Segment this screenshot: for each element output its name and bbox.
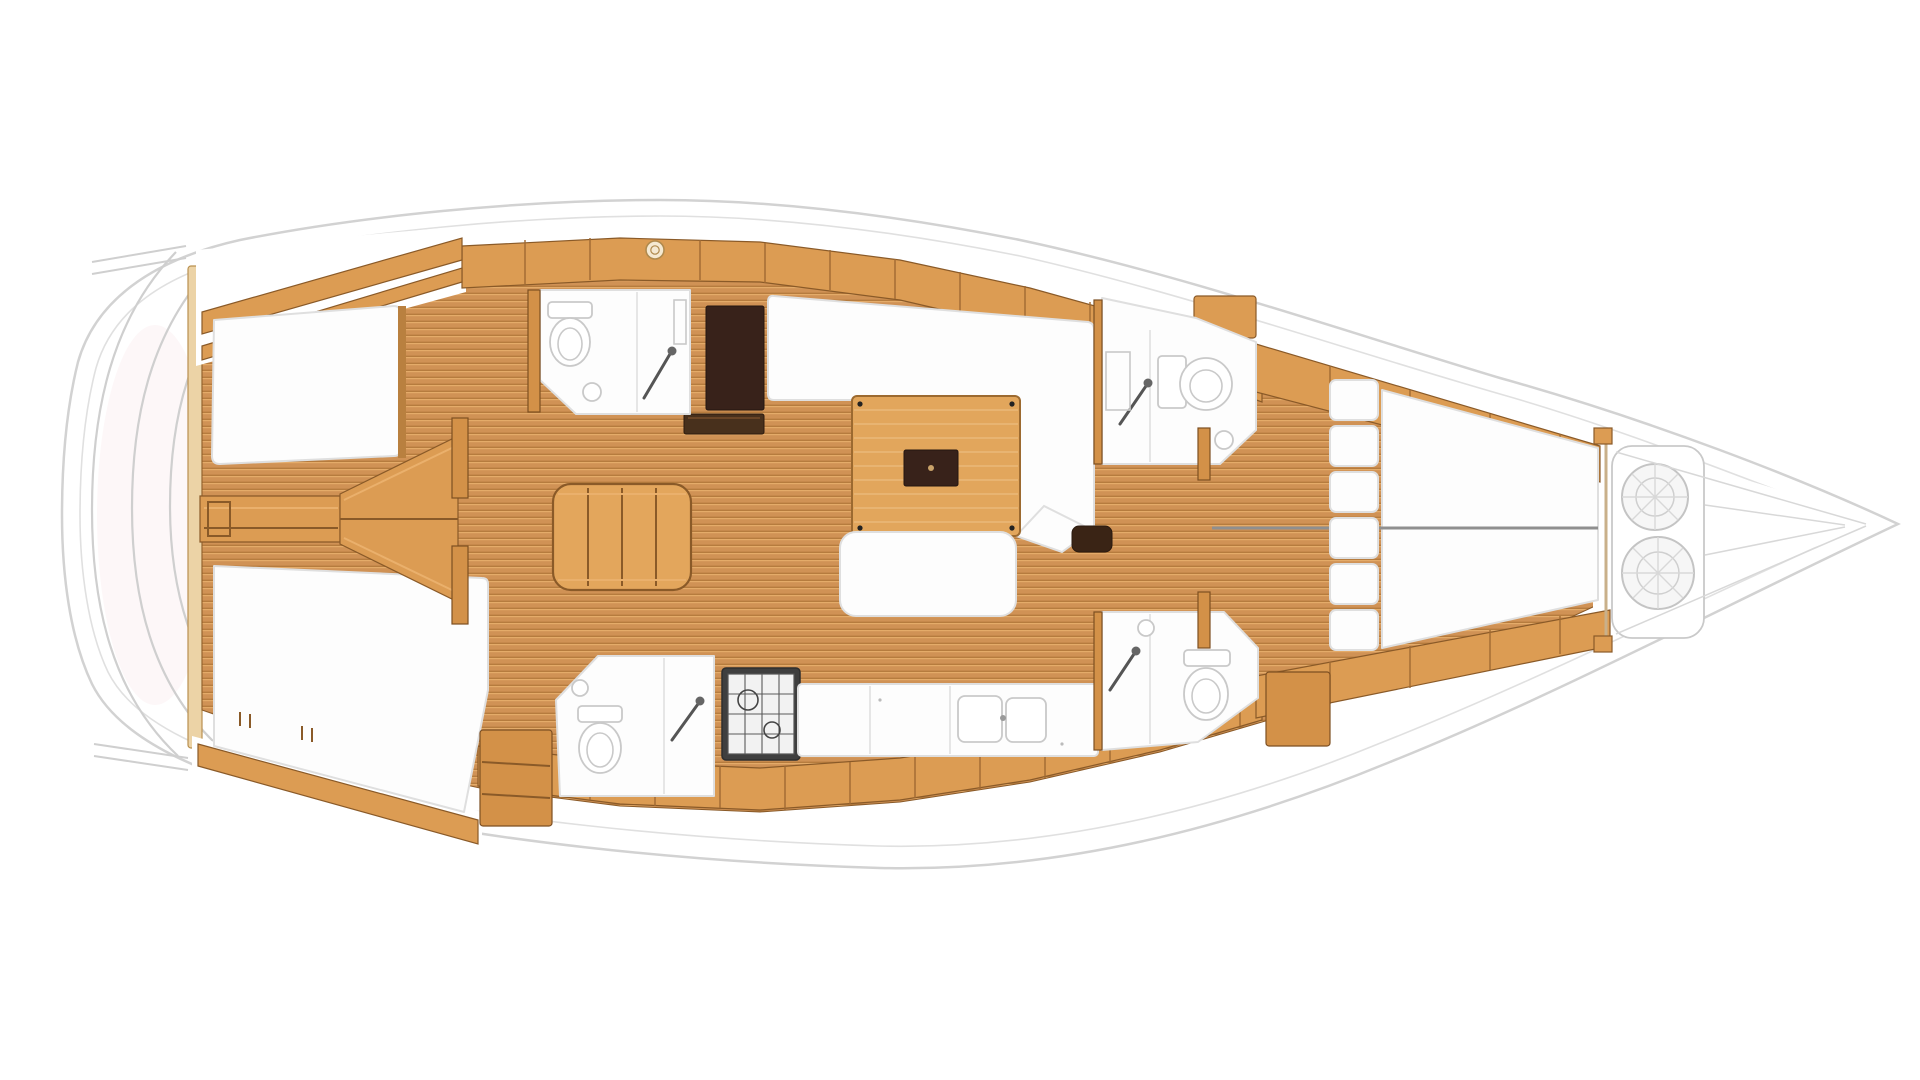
head-room	[556, 656, 714, 796]
head-wall-midship	[528, 290, 540, 412]
galley-sink-right	[1006, 698, 1046, 742]
forward-bulkhead-top	[1198, 428, 1210, 480]
galley-stove	[722, 668, 800, 760]
bulkhead-cap-bottom	[1594, 636, 1612, 652]
counter-dot	[878, 698, 881, 701]
sink-icon	[1215, 431, 1233, 449]
head-amidships-top	[540, 290, 690, 414]
companionway-steps	[553, 484, 691, 590]
galley-sink-left	[958, 696, 1002, 742]
bulkhead-top	[452, 418, 468, 498]
forward-bulkhead-bottom	[1198, 592, 1210, 648]
head-wall-top	[1094, 300, 1102, 464]
head-wall-bottom	[1094, 612, 1102, 750]
salon-table	[852, 396, 1020, 536]
aft-cabin-bed-top	[212, 306, 400, 464]
sink-icon	[583, 383, 601, 401]
toilet-icon	[1158, 356, 1232, 410]
corridor-step-dark	[1072, 526, 1112, 552]
table-corner-dot	[1009, 525, 1014, 530]
porthole-icon	[646, 241, 664, 259]
rope-coil-icon	[1622, 464, 1688, 530]
toilet-icon	[548, 302, 592, 366]
aft-cabin-bottom-cabinet	[480, 730, 552, 826]
table-corner-dot	[857, 401, 862, 406]
table-corner-dot	[857, 525, 862, 530]
galley-faucet-icon	[1000, 715, 1006, 721]
sink-icon	[1138, 620, 1154, 636]
forward-cabinet-bottom	[1266, 672, 1330, 746]
galley-counter	[798, 684, 1098, 756]
bulkhead-cap-top	[1594, 428, 1612, 444]
salon-bench	[840, 532, 1016, 616]
table-centerpiece-dot	[928, 465, 934, 471]
toilet-icon	[1184, 650, 1230, 720]
bulkhead-bottom	[452, 546, 468, 624]
toilet-icon	[578, 706, 622, 773]
yacht-floorplan-page	[0, 0, 1920, 1080]
rope-coil-icon	[1622, 537, 1694, 609]
sink-icon	[572, 680, 588, 696]
counter-dot	[1060, 742, 1063, 745]
table-corner-dot	[1009, 401, 1014, 406]
head-amidships-bottom	[556, 656, 714, 796]
aft-cabin-top-cabinet-line	[398, 306, 406, 458]
nav-dark-locker-panel	[706, 306, 764, 410]
yacht-floorplan	[0, 0, 1920, 1080]
